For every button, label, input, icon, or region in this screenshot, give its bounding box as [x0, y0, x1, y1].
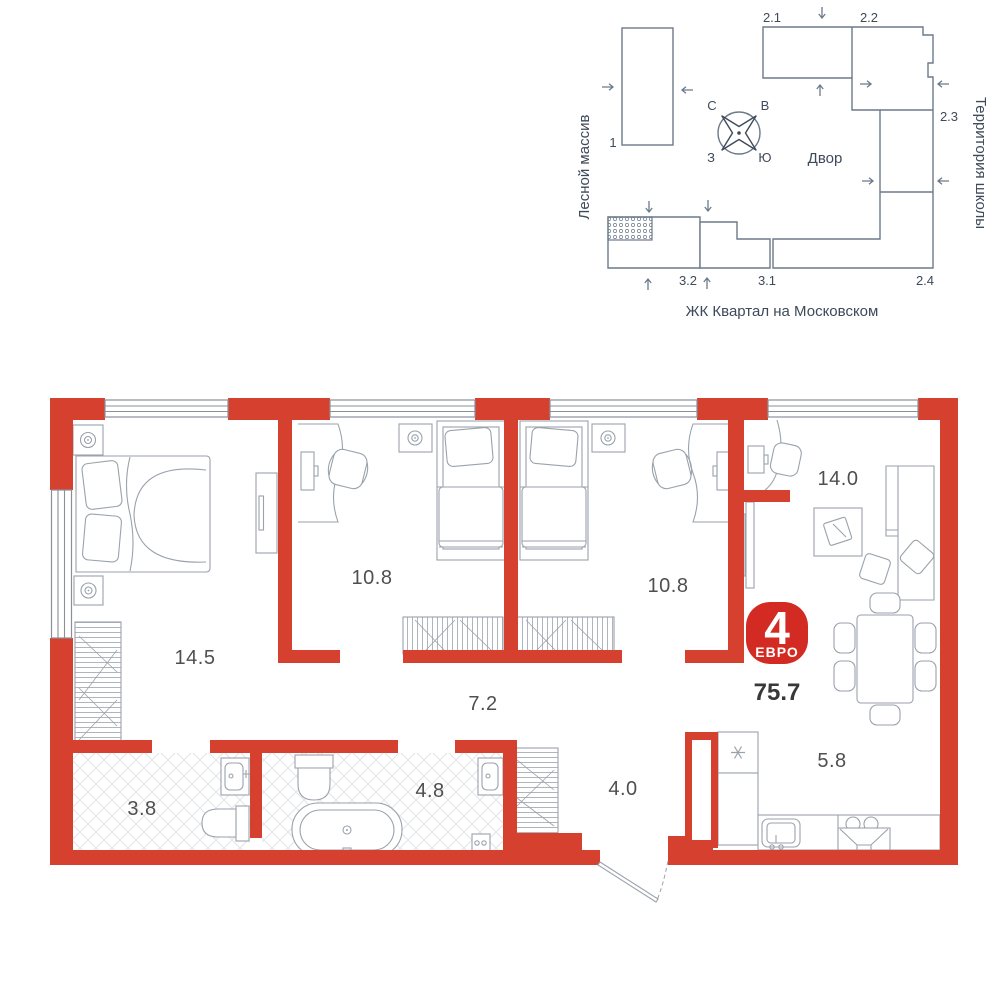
window — [52, 490, 72, 638]
school-area-label: Территория школы — [972, 97, 989, 229]
compass-east: В — [761, 98, 770, 113]
site-plan-caption: ЖК Квартал на Московском — [686, 303, 879, 320]
current-building-marker — [608, 217, 652, 240]
ceiling-speaker-icon — [74, 576, 103, 605]
dining-table — [834, 593, 936, 725]
desk — [689, 424, 734, 522]
window — [105, 400, 228, 417]
site-building-3-1 — [700, 222, 770, 268]
compass-icon: С В З Ю — [707, 98, 772, 165]
apartment-type-badge: 4 ЕВРО 75.7 — [746, 602, 808, 706]
window — [330, 400, 475, 417]
window — [550, 400, 697, 417]
room-label-bedroom: 14.5 — [175, 647, 216, 669]
washing-machine — [472, 834, 490, 852]
compass-north: С — [707, 98, 716, 113]
single-bed — [437, 421, 505, 560]
compass-west: З — [707, 150, 715, 165]
kitchen-sink — [762, 819, 800, 849]
courtyard-label: Двор — [808, 150, 843, 167]
building-label-2-3: 2.3 — [940, 109, 958, 124]
wardrobe — [403, 617, 503, 654]
room-label-hallway: 4.0 — [608, 778, 637, 800]
room-label-bedroom-2: 10.8 — [352, 567, 393, 589]
fridge — [718, 732, 758, 773]
office-chair — [769, 441, 803, 477]
bathroom-sink — [221, 758, 251, 795]
double-bed — [76, 456, 210, 572]
room-label-corridor: 7.2 — [468, 693, 497, 715]
entrance-door — [598, 861, 668, 902]
plan-canvas: С В З Ю 1 2.1 2.2 2.3 2.4 3.2 3.1 Двор Л… — [0, 0, 1000, 1000]
forest-area-label: Лесной массив — [576, 115, 593, 220]
building-label-2-4: 2.4 — [916, 273, 934, 288]
room-label-bedroom-3: 10.8 — [648, 575, 689, 597]
wardrobe — [75, 622, 121, 744]
bathroom-sink — [478, 758, 503, 795]
room-label-kitchen: 5.8 — [817, 750, 846, 772]
compass-south: Ю — [758, 150, 771, 165]
site-building-2-complex — [763, 27, 933, 268]
ceiling-speaker-icon — [592, 424, 625, 452]
room-label-bathroom: 3.8 — [127, 798, 156, 820]
dresser — [256, 473, 277, 553]
coffee-table — [814, 508, 862, 556]
floor-plan: 14.5 10.8 10.8 14.0 7.2 3.8 4.8 4.0 5.8 … — [50, 398, 958, 902]
ceiling-speaker-icon — [73, 425, 103, 455]
single-bed — [520, 421, 588, 560]
window — [768, 400, 918, 417]
building-label-2-2: 2.2 — [860, 10, 878, 25]
site-plan: С В З Ю 1 2.1 2.2 2.3 2.4 3.2 3.1 Двор Л… — [576, 7, 989, 320]
room-label-bathroom-2: 4.8 — [415, 780, 444, 802]
building-label-1: 1 — [609, 135, 616, 150]
building-label-2-1: 2.1 — [763, 10, 781, 25]
toilet — [202, 806, 249, 841]
ventilation-shaft — [685, 732, 718, 848]
wardrobe — [514, 617, 614, 654]
site-building-1 — [622, 28, 673, 145]
total-area-value: 75.7 — [754, 679, 801, 706]
ceiling-speaker-icon — [399, 424, 432, 452]
bathtub — [292, 803, 402, 856]
kitchen-counter — [718, 773, 758, 845]
room-label-living-room: 14.0 — [818, 468, 859, 490]
floorplan-page: С В З Ю 1 2.1 2.2 2.3 2.4 3.2 3.1 Двор Л… — [0, 0, 1000, 1000]
hall-wardrobe — [514, 748, 558, 836]
toilet — [295, 755, 333, 800]
sofa — [859, 466, 936, 600]
building-label-3-2: 3.2 — [679, 273, 697, 288]
badge-layout-type: ЕВРО — [755, 644, 799, 660]
building-label-3-1: 3.1 — [758, 273, 776, 288]
